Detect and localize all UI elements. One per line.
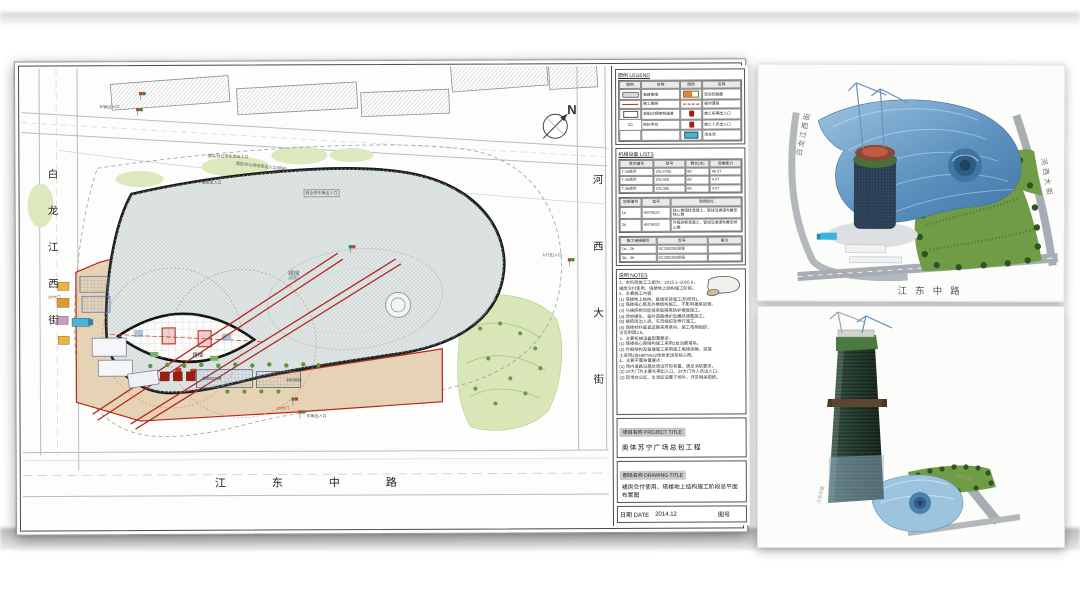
legend-temp-road-symbol: [680, 100, 702, 108]
legend-item-label: 卸料平台: [641, 119, 680, 129]
table-cell: 1#、2#: [620, 245, 657, 254]
table-cell: 3#、4#: [620, 253, 657, 262]
crane-table-header: 起重能力: [710, 159, 742, 167]
legend-header: 图例: [619, 81, 641, 89]
legend-pavement-symbol: [680, 89, 702, 100]
pump-table-header: 浇筑部位: [671, 198, 742, 207]
aerial-render: [758, 64, 1065, 301]
legend-header: 名称: [641, 81, 680, 90]
pump-table-header: 型号: [642, 198, 671, 206]
legend-vehicle-gate-symbol: [680, 108, 702, 119]
table-cell: 60: [685, 176, 709, 184]
drawing-title-value: 裙房交付使用、塔楼地上结构施工阶段总平面布置图: [622, 484, 742, 500]
truck-icon: [817, 233, 837, 240]
crane-table-header: 塔吊编号: [619, 160, 653, 169]
legend-item-label: 洗车池: [702, 129, 741, 140]
table-cell: HBT9022: [642, 206, 671, 219]
render2-ground: [872, 464, 1020, 533]
site-plan-drawing: N: [21, 66, 611, 527]
drawing-sheet: N 白龙江西街 河西大街 江东中路 裙房 (屋面) 塔楼 车辆出入口 酒店/办公…: [14, 58, 748, 535]
north-compass-icon: N: [543, 102, 577, 138]
render2-tower: [827, 312, 892, 503]
render-card-aerial: 白龙江西街 河西大街 江东中路: [757, 63, 1066, 302]
equipment-section: 机械设备 LISTS 塔吊编号 型号 臂长(米) 起重能力 T-1#塔吊ZSL2…: [615, 147, 746, 266]
list-item: (3) 现场办公区、生活区设置于场外，详见相关图纸。: [619, 374, 743, 380]
date-label: 日期 DATE: [620, 510, 649, 519]
render-card-tower: 江东中路 河西大街: [757, 306, 1065, 548]
lift-table: 施工电梯编号 型号 备注 1#、2#SC200/200双笼3#、4#SC200/…: [619, 235, 743, 263]
sheet-frame: N 白龙江西街 河西大街 江东中路 裙房 (屋面) 塔楼 车辆出入口 酒店/办公…: [18, 62, 744, 531]
compass-n-label: N: [567, 102, 576, 117]
date-row: 日期 DATE 2014.12 图号: [617, 505, 747, 523]
legend-item-label: 施工车辆出入口: [702, 108, 741, 119]
table-cell: T-2#塔吊: [619, 176, 653, 185]
legend-item-label: 装配式钢结构通道: [641, 108, 680, 119]
legend-hoarding-symbol: [619, 100, 641, 108]
red-equipment-boxes: [160, 372, 195, 381]
table-cell: ZSL2700: [654, 168, 686, 176]
legend-title: 图例 LEGEND: [618, 71, 742, 79]
legend-item-label: 临时道路: [702, 100, 741, 109]
legend-steel-passage-symbol: [619, 109, 641, 120]
table-cell: SC200/200双笼: [656, 253, 707, 262]
date-value: 2014.12: [655, 511, 677, 517]
legend-header: 名称: [702, 80, 741, 89]
crane-table: 塔吊编号 型号 臂长(米) 起重能力 T-1#塔吊ZSL27008046.3TT…: [618, 158, 742, 194]
table-cell: 46.3T: [710, 168, 742, 176]
existing-buildings: [110, 66, 598, 118]
legend-table: 图例 名称 图例 名称 临建围墙 现浇砼路面 施工围挡 临时道路 装配式: [618, 79, 742, 141]
table-cell: 4.0T: [710, 184, 742, 192]
truck-icon: [72, 318, 93, 326]
drawing-title-label: 图纸名称 DRAWING TITLE: [620, 471, 686, 480]
legend-item-label: [619, 130, 641, 141]
table-cell: SC200/200双笼: [656, 245, 707, 254]
title-block: 图例 LEGEND 图例 名称 图例 名称 临建围墙 现浇砼路面 施工围挡: [611, 65, 750, 526]
table-cell: HBT9022: [642, 219, 671, 232]
legend-item-label: 现浇砼路面: [702, 89, 741, 100]
legend-empty-cell: [641, 129, 680, 140]
legend-header: 图例: [680, 81, 702, 89]
table-cell: T-1#塔吊: [619, 168, 653, 177]
legend-ped-gate-symbol: [680, 119, 702, 129]
table-cell: 4.5T: [710, 176, 742, 184]
gate-facility-boxes: [57, 282, 69, 344]
crane-table-header: 臂长(米): [685, 159, 709, 167]
table-cell: ZSL380: [654, 184, 686, 192]
legend-item-label: 施工人员出入口: [702, 119, 741, 129]
site-plan: N 白龙江西街 河西大街 江东中路 裙房 (屋面) 塔楼 车辆出入口 酒店/办公…: [21, 66, 611, 527]
legend-washpit-symbol: [680, 129, 702, 140]
lift-table-header: 备注: [708, 236, 742, 245]
legend-section: 图例 LEGEND 图例 名称 图例 名称 临建围墙 现浇砼路面 施工围挡: [615, 68, 745, 144]
notes-section: 说明 NOTES 1、本阶段施工工期为：2015.1~2016.6， 裙房交付使…: [616, 268, 747, 415]
table-cell: 1#: [620, 206, 642, 219]
table-cell: T-3#塔吊: [620, 185, 654, 194]
pump-table-header: 地泵编号: [620, 198, 642, 206]
table-cell: 60: [685, 184, 709, 192]
lift-table-header: 型号: [656, 237, 707, 246]
crane-table-header: 型号: [654, 159, 686, 167]
project-title-label: 项目名称 PROJECT TITLE: [620, 428, 686, 437]
table-cell: [708, 253, 742, 262]
project-title-value: 奥体苏宁广场总包工程: [622, 442, 742, 453]
legend-unloading-symbol: CD: [619, 120, 641, 130]
project-title-box: 项目名称 PROJECT TITLE 奥体苏宁广场总包工程: [617, 417, 747, 458]
legend-item-label: 施工围挡: [641, 100, 680, 109]
table-cell: 核心筒墙柱混凝土，管线沿通道布置至核心筒: [671, 206, 742, 219]
photo-glare-top: [0, 12, 1080, 24]
legend-fence-symbol: [619, 89, 641, 100]
pump-table: 地泵编号 型号 浇筑部位 1#HBT9022核心筒墙柱混凝土，管线沿通道布置至核…: [619, 197, 743, 233]
table-cell: ZSL450: [654, 176, 686, 184]
table-cell: [708, 245, 742, 254]
table-cell: 外框梁板混凝土，管线沿通道布置至核心筒: [671, 219, 742, 232]
page-root: N 白龙江西街 河西大街 江东中路 裙房 (屋面) 塔楼 车辆出入口 酒店/办公…: [0, 0, 1080, 608]
lift-table-header: 施工电梯编号: [620, 237, 657, 246]
tower-render: [758, 307, 1064, 547]
table-cell: 80: [685, 168, 709, 176]
drawing-title-box: 图纸名称 DRAWING TITLE 裙房交付使用、塔楼地上结构施工阶段总平面布…: [617, 460, 747, 503]
table-cell: 2#: [620, 219, 642, 232]
legend-item-label: 临建围墙: [641, 89, 680, 100]
equipment-title: 机械设备 LISTS: [618, 150, 742, 158]
notes-sketch-icon: [701, 271, 743, 299]
sheet-no-label: 图号: [718, 509, 730, 518]
